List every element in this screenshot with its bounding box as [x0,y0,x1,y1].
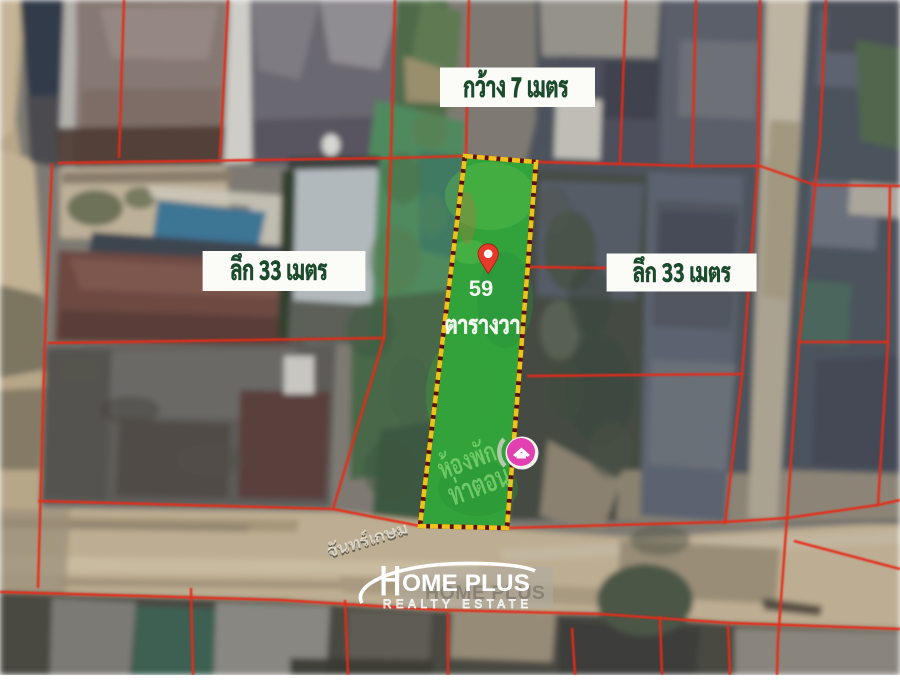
svg-text:REALTY ESTATE: REALTY ESTATE [383,599,533,611]
svg-text:59: 59 [469,276,493,301]
svg-text:OME PLUS: OME PLUS [402,570,530,597]
